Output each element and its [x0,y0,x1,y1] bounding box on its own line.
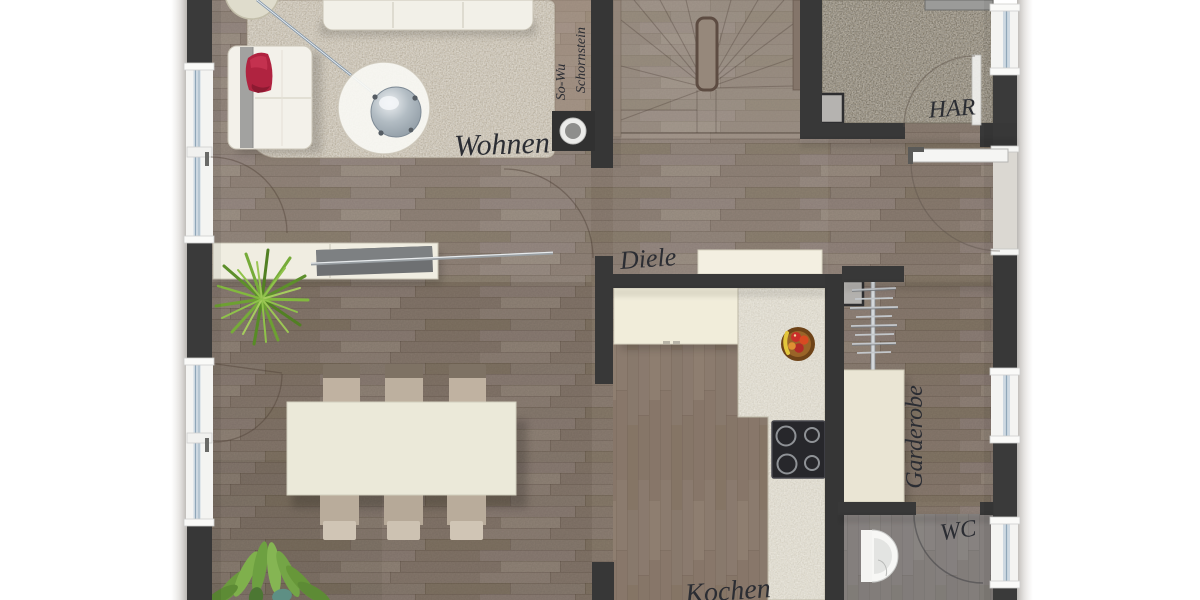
svg-text:Schornstein: Schornstein [574,27,589,93]
svg-text:HAR: HAR [927,94,977,123]
svg-text:Diele: Diele [618,242,677,275]
svg-text:So-Wu: So-Wu [554,64,569,101]
svg-text:WC: WC [939,515,979,546]
svg-text:Wohnen: Wohnen [454,126,551,162]
svg-text:Garderobe: Garderobe [902,385,928,489]
